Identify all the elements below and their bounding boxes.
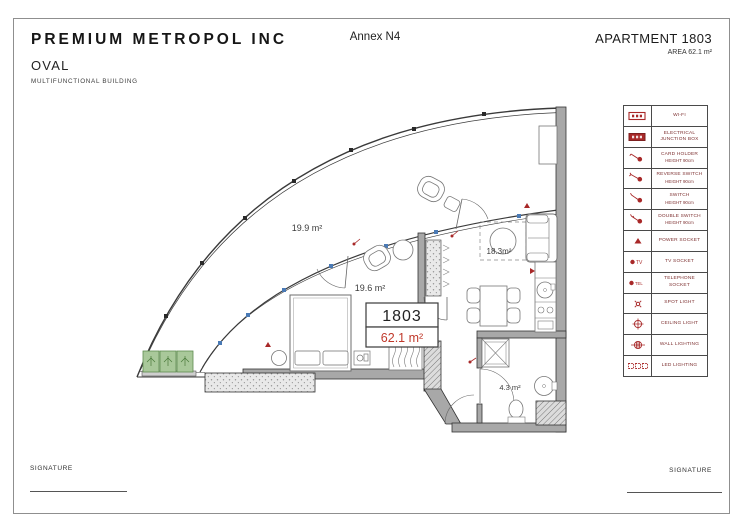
terrace-door-swing <box>317 269 345 288</box>
legend-row-switch: SWITCHHEIGHT 90cm <box>624 189 707 210</box>
reverse-switch-icon <box>624 169 652 189</box>
power-socket-icon <box>265 342 271 347</box>
bedroom-area-label: 19.6 m² <box>355 283 386 293</box>
round-side-table <box>393 240 413 260</box>
terrace-area-label: 19.9 m² <box>292 223 323 233</box>
power-socket-icon <box>530 268 535 274</box>
ceiling-light-icon <box>624 314 652 334</box>
hatched-wall-block <box>424 341 441 391</box>
double-switch-icon <box>624 210 652 230</box>
junction-box-icon <box>624 127 652 147</box>
bed <box>290 295 351 371</box>
wall-lighting-icon <box>624 335 652 355</box>
dining-set <box>467 286 520 326</box>
legend-row-wall-lighting: WALL LIGHTING <box>624 335 707 356</box>
wifi-icon <box>624 106 652 126</box>
toilet <box>508 400 525 423</box>
cooktop-burner <box>538 307 544 313</box>
signature-label-right: SIGNATURE <box>669 467 712 474</box>
hatched-wall-block-2 <box>536 401 566 425</box>
svg-text:TEL: TEL <box>635 280 643 285</box>
power-socket-icon <box>624 231 652 251</box>
legend-row-ceiling-light: CEILING LIGHT <box>624 314 707 335</box>
washbasin <box>535 377 558 396</box>
led-lighting-icon <box>624 356 652 376</box>
badge-number: 1803 <box>382 308 422 325</box>
signature-label-left: SIGNATURE <box>30 465 73 472</box>
shower-tray <box>482 339 509 367</box>
terrace-footstool <box>443 195 461 212</box>
legend-row-spot-light: SPOT LIGHT <box>624 294 707 315</box>
spot-light-icon <box>624 294 652 314</box>
legend-row-reverse-switch: REVERSE SWITCHHEIGHT 90cm <box>624 169 707 190</box>
legend-row-tv-socket: TV TV SOCKET <box>624 252 707 273</box>
wardrobe <box>426 240 449 296</box>
legend-row-junction-box: ELECTRICAL JUNCTION BOX <box>624 127 707 148</box>
bedroom-armchair <box>360 242 394 274</box>
legend: WI-FI ELECTRICAL JUNCTION BOX CARD HOLDE… <box>623 105 708 377</box>
switch-icon <box>624 189 652 209</box>
bathroom-area-label: 4.3 m² <box>499 383 521 392</box>
sofa <box>526 214 557 262</box>
badge-area: 62.1 m² <box>381 331 423 345</box>
legend-row-double-switch: DOUBLE SWITCHHEIGHT 90cm <box>624 210 707 231</box>
cooktop-burner <box>547 307 553 313</box>
legend-row-card-holder: CARD HOLDERHEIGHT 90cm <box>624 148 707 169</box>
apartment-badge: 1803 62.1 m² <box>366 303 438 347</box>
kitchen-counter <box>535 262 556 332</box>
entry-cabinet <box>539 126 557 164</box>
legend-row-power-socket: POWER SOCKET <box>624 231 707 252</box>
entry-door-swing <box>462 199 488 219</box>
legend-row-wifi: WI-FI <box>624 106 707 127</box>
signature-line-left <box>30 491 127 492</box>
legend-row-led-lighting: LED LIGHTING <box>624 356 707 376</box>
bedside-table <box>354 351 370 365</box>
signature-line-right <box>627 492 722 493</box>
card-holder-icon <box>624 148 652 168</box>
living-area-label: 18.3m² <box>487 247 512 256</box>
legend-row-telephone-socket: TEL TELEPHONE SOCKET <box>624 273 707 294</box>
tv-socket-icon: TV <box>624 252 652 272</box>
terrace-planters <box>142 351 196 376</box>
bedside-stool <box>272 351 287 366</box>
telephone-socket-icon: TEL <box>624 273 652 293</box>
power-socket-icon <box>524 203 530 208</box>
hanger-icon <box>443 245 449 287</box>
svg-text:TV: TV <box>636 260 643 266</box>
exterior-stippled-wall <box>205 373 315 392</box>
terrace-armchair <box>414 173 447 205</box>
